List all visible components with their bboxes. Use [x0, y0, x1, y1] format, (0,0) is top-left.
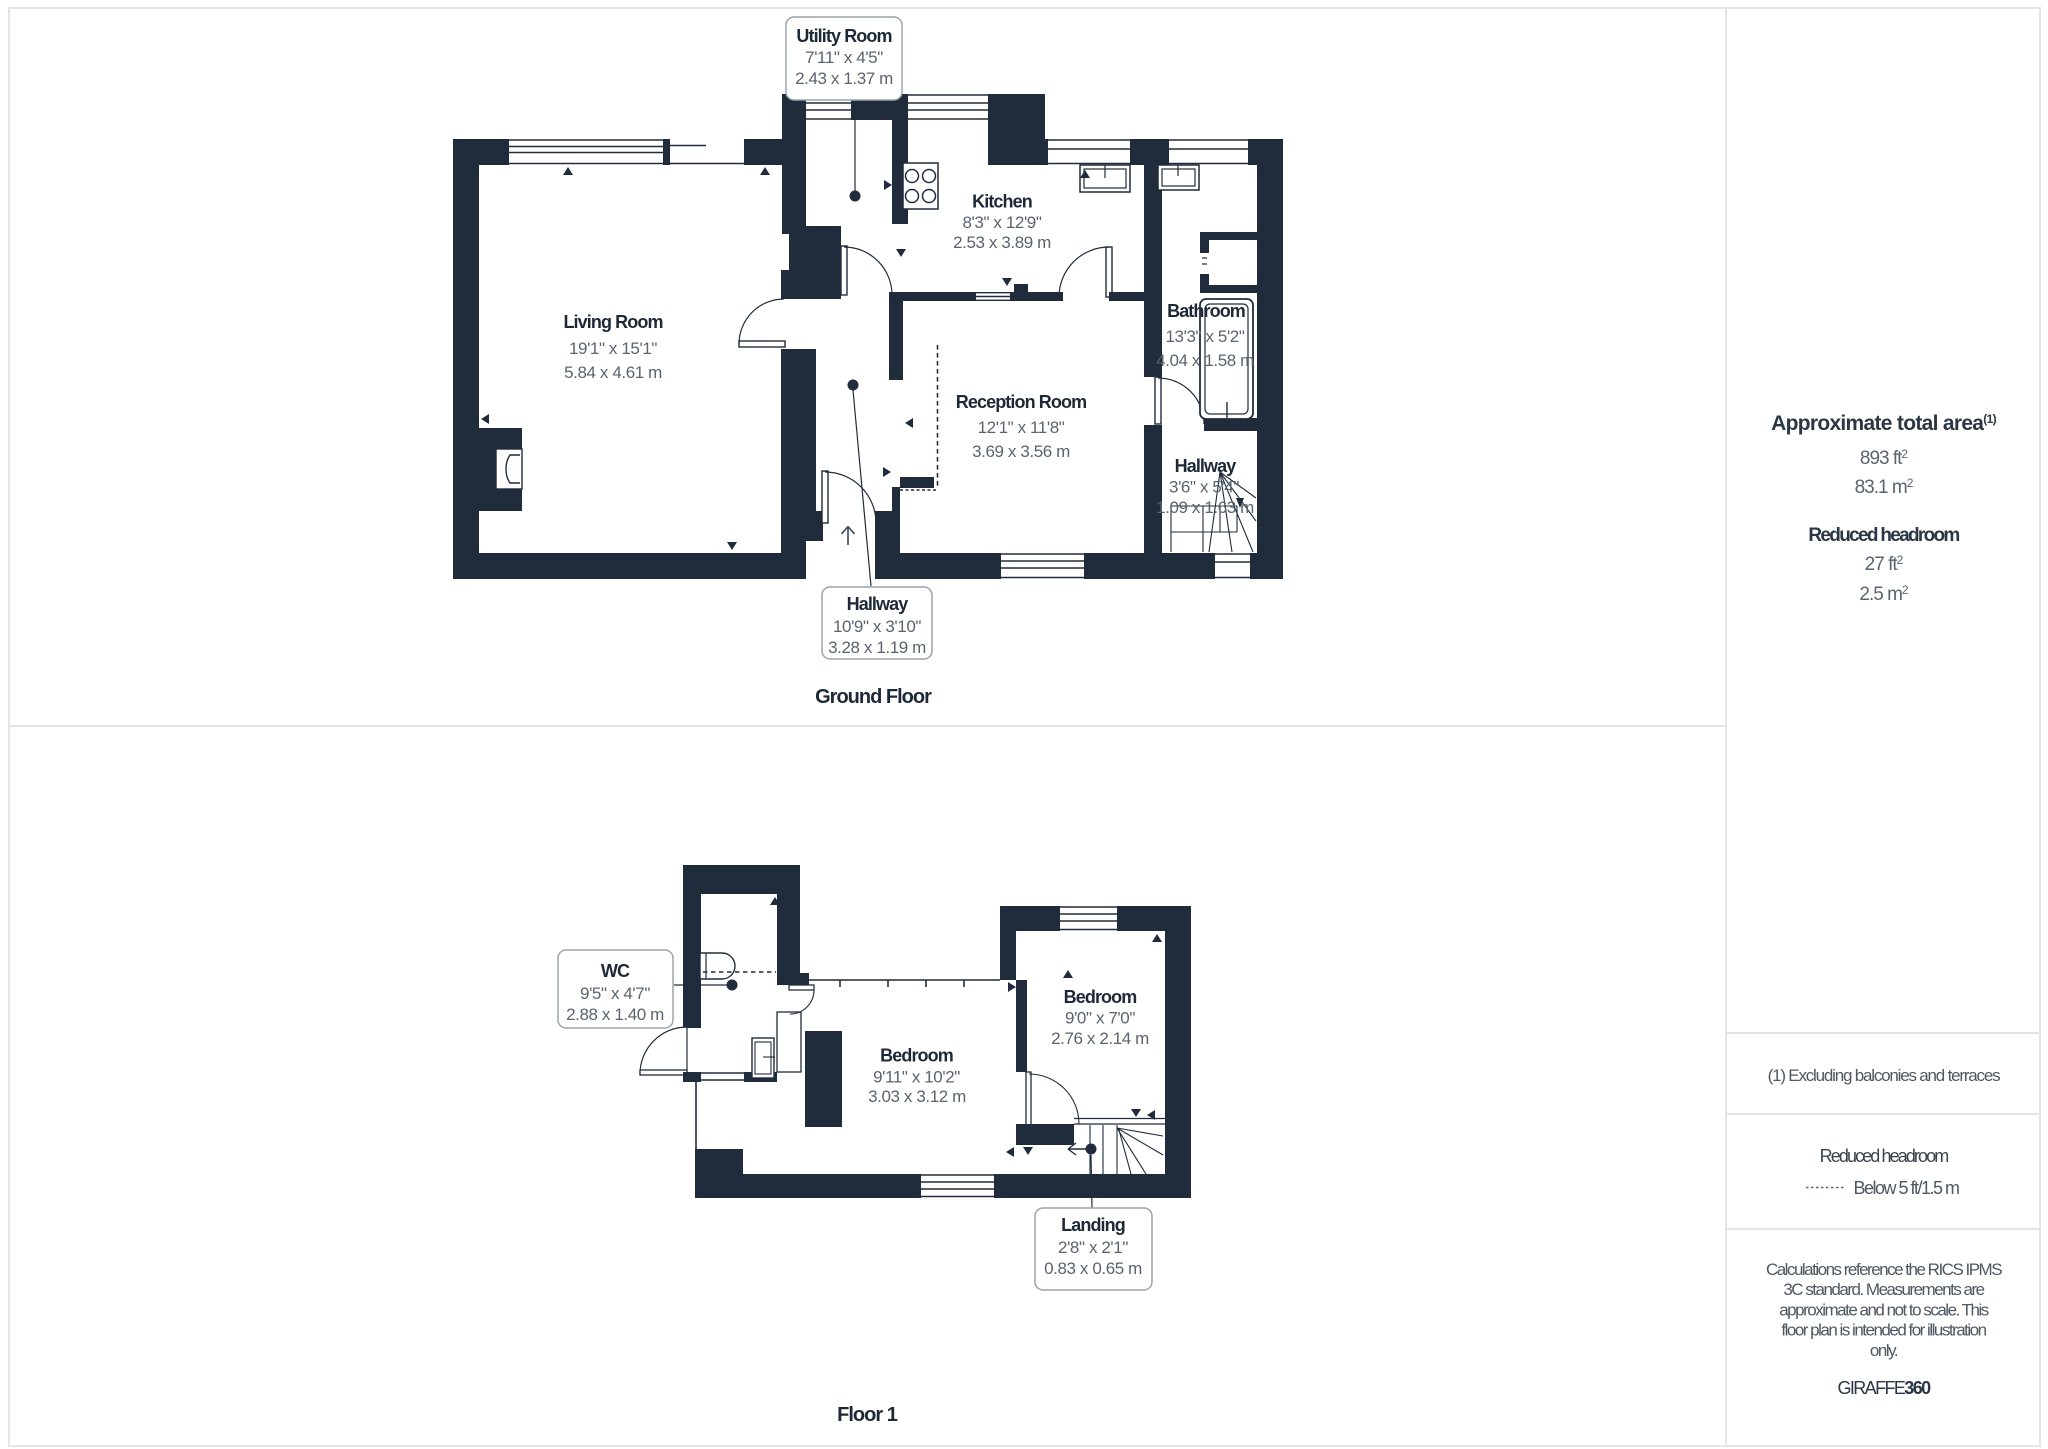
- svg-text:Below 5 ft/1.5 m: Below 5 ft/1.5 m: [1853, 1178, 1959, 1198]
- svg-text:Floor 1: Floor 1: [837, 1404, 898, 1426]
- svg-text:8'3" x 12'9": 8'3" x 12'9": [963, 213, 1042, 232]
- svg-text:10'9" x 3'10": 10'9" x 3'10": [833, 617, 921, 636]
- svg-text:Reception Room: Reception Room: [956, 392, 1086, 412]
- svg-text:approximate and not to scale.: approximate and not to scale. This: [1779, 1300, 1989, 1319]
- svg-text:9'11" x 10'2": 9'11" x 10'2": [873, 1068, 960, 1087]
- svg-text:Reduced headroom: Reduced headroom: [1820, 1146, 1949, 1166]
- svg-text:9'0" x 7'0": 9'0" x 7'0": [1065, 1009, 1135, 1028]
- svg-text:3'6" x 5'4": 3'6" x 5'4": [1169, 478, 1239, 497]
- svg-text:Hallway: Hallway: [847, 594, 909, 614]
- svg-text:7'11" x 4'5": 7'11" x 4'5": [805, 48, 883, 67]
- svg-text:2.88 x 1.40 m: 2.88 x 1.40 m: [566, 1005, 664, 1024]
- svg-text:19'1" x 15'1": 19'1" x 15'1": [569, 339, 657, 358]
- svg-text:Landing: Landing: [1061, 1215, 1125, 1235]
- svg-text:only.: only.: [1870, 1341, 1898, 1360]
- svg-text:floor plan is intended for ill: floor plan is intended for illustration: [1781, 1321, 1986, 1340]
- svg-text:3.28 x 1.19 m: 3.28 x 1.19 m: [828, 638, 926, 657]
- svg-text:4.04 x 1.58 m: 4.04 x 1.58 m: [1156, 351, 1254, 370]
- svg-text:Calculations reference the RIC: Calculations reference the RICS IPMS: [1766, 1260, 2002, 1279]
- svg-text:Living Room: Living Room: [563, 312, 662, 332]
- svg-text:5.84 x 4.61 m: 5.84 x 4.61 m: [564, 363, 662, 382]
- svg-text:12'1" x 11'8": 12'1" x 11'8": [978, 418, 1065, 437]
- svg-text:Kitchen: Kitchen: [972, 192, 1032, 212]
- svg-text:Reduced headroom: Reduced headroom: [1808, 525, 1959, 546]
- svg-text:83.1 m2: 83.1 m2: [1855, 476, 1914, 498]
- svg-text:(1) Excluding balconies and te: (1) Excluding balconies and terraces: [1768, 1066, 2000, 1085]
- svg-text:9'5" x 4'7": 9'5" x 4'7": [580, 984, 650, 1003]
- svg-text:2.53 x 3.89 m: 2.53 x 3.89 m: [953, 233, 1051, 252]
- svg-text:GIRAFFE360: GIRAFFE360: [1837, 1378, 1931, 1398]
- svg-text:Ground Floor: Ground Floor: [815, 686, 932, 708]
- svg-text:893 ft2: 893 ft2: [1860, 447, 1909, 469]
- svg-text:13'3" x 5'2": 13'3" x 5'2": [1166, 327, 1245, 346]
- svg-text:Bedroom: Bedroom: [1064, 987, 1137, 1007]
- svg-text:Hallway: Hallway: [1175, 456, 1237, 476]
- svg-text:2.76 x 2.14 m: 2.76 x 2.14 m: [1051, 1029, 1149, 1048]
- svg-text:Utility Room: Utility Room: [796, 26, 891, 46]
- svg-text:0.83 x 0.65 m: 0.83 x 0.65 m: [1044, 1259, 1142, 1278]
- svg-text:1.09 x 1.63 m: 1.09 x 1.63 m: [1156, 498, 1254, 517]
- svg-text:Approximate total area(1): Approximate total area(1): [1771, 412, 1996, 435]
- svg-text:2'8" x 2'1": 2'8" x 2'1": [1058, 1238, 1128, 1257]
- svg-text:WC: WC: [601, 961, 630, 981]
- svg-text:3.69 x 3.56 m: 3.69 x 3.56 m: [972, 442, 1070, 461]
- svg-text:3.03 x 3.12 m: 3.03 x 3.12 m: [868, 1087, 966, 1106]
- svg-text:Bedroom: Bedroom: [880, 1046, 953, 1066]
- svg-text:3C standard. Measurements are: 3C standard. Measurements are: [1783, 1280, 1984, 1299]
- svg-text:Bathroom: Bathroom: [1167, 301, 1245, 321]
- svg-text:2.43 x 1.37 m: 2.43 x 1.37 m: [795, 69, 893, 88]
- svg-text:2.5 m2: 2.5 m2: [1859, 583, 1909, 605]
